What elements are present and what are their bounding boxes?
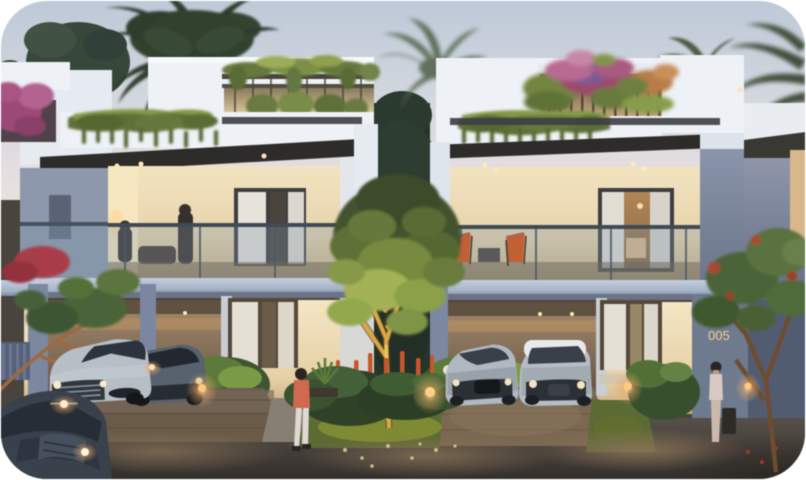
- svg-text:005: 005: [708, 328, 730, 343]
